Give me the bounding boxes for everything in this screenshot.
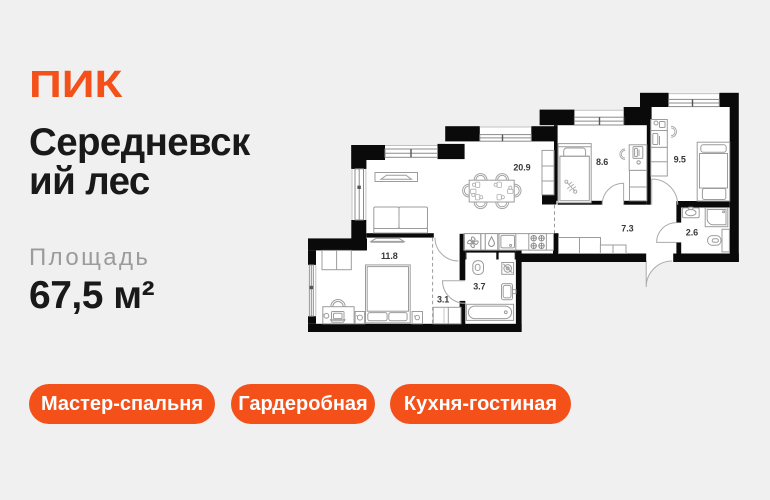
svg-text:8.6: 8.6 xyxy=(596,157,608,167)
svg-text:7.3: 7.3 xyxy=(621,224,633,234)
svg-text:20.9: 20.9 xyxy=(513,162,530,172)
svg-text:2.6: 2.6 xyxy=(686,228,698,238)
svg-text:3.7: 3.7 xyxy=(473,281,485,291)
svg-text:3.1: 3.1 xyxy=(437,294,449,304)
svg-text:9.5: 9.5 xyxy=(674,155,686,165)
svg-text:11.8: 11.8 xyxy=(381,251,398,261)
